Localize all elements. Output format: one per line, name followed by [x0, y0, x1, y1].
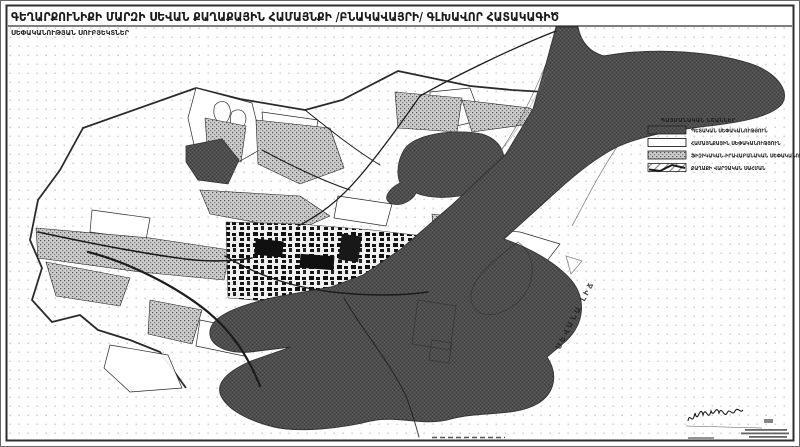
map-canvas: ՍԵՎԱՆԱ ԼԻՃ ԳԵՂԱՐՔՈՒՆԻՔԻ ՄԱՐԶԻ ՍԵՎԱՆ ՔԱՂԱ… — [0, 0, 800, 447]
state-ownership-swatch-icon — [648, 126, 686, 134]
legend-item-label: ՔԱՂԱՔԻ ՎԱՐՉԱԿԱՆ ՍԱՀՄԱՆ — [691, 166, 766, 172]
private-ownership-swatch-icon — [648, 151, 686, 159]
community-ownership-swatch-icon — [648, 139, 686, 147]
parcel-polygon — [395, 92, 462, 132]
legend-item-label: ՊԵՏԱԿԱՆ ՍԵՓԱԿԱՆՈՒԹՅՈՒՆ — [691, 129, 768, 135]
page-title: ԳԵՂԱՐՔՈՒՆԻՔԻ ՄԱՐԶԻ ՍԵՎԱՆ ՔԱՂԱՔԱՅԻՆ ՀԱՄԱՅ… — [11, 9, 559, 24]
page-subtitle: ՍԵՓԱԿԱՆՈՒԹՅԱՆ ՍՈՒԲՅԵԿՏՆԵՐ — [11, 29, 129, 37]
legend-item-label: ՀԱՄԱՅՆՔԱՅԻՆ ՍԵՓԱԿԱՆՈՒԹՅՈՒՆ — [691, 141, 781, 147]
legend-title: ՊԱՅՄԱՆԱԿԱՆ ՆՇԱՆՆԵՐ — [660, 118, 736, 124]
stamp-mark — [764, 419, 773, 423]
legend-item-label: ՖԻԶԻԿԱԿԱՆ-ԻՐԱՎԱԲԱՆԱԿԱՆ ՍԵՓԱԿԱՆՈՒԹՅՈՒՆ — [691, 154, 800, 160]
scanned-map-sheet: ՍԵՎԱՆԱ ԼԻՃ ԳԵՂԱՐՔՈՒՆԻՔԻ ՄԱՐԶԻ ՍԵՎԱՆ ՔԱՂԱ… — [0, 0, 800, 447]
